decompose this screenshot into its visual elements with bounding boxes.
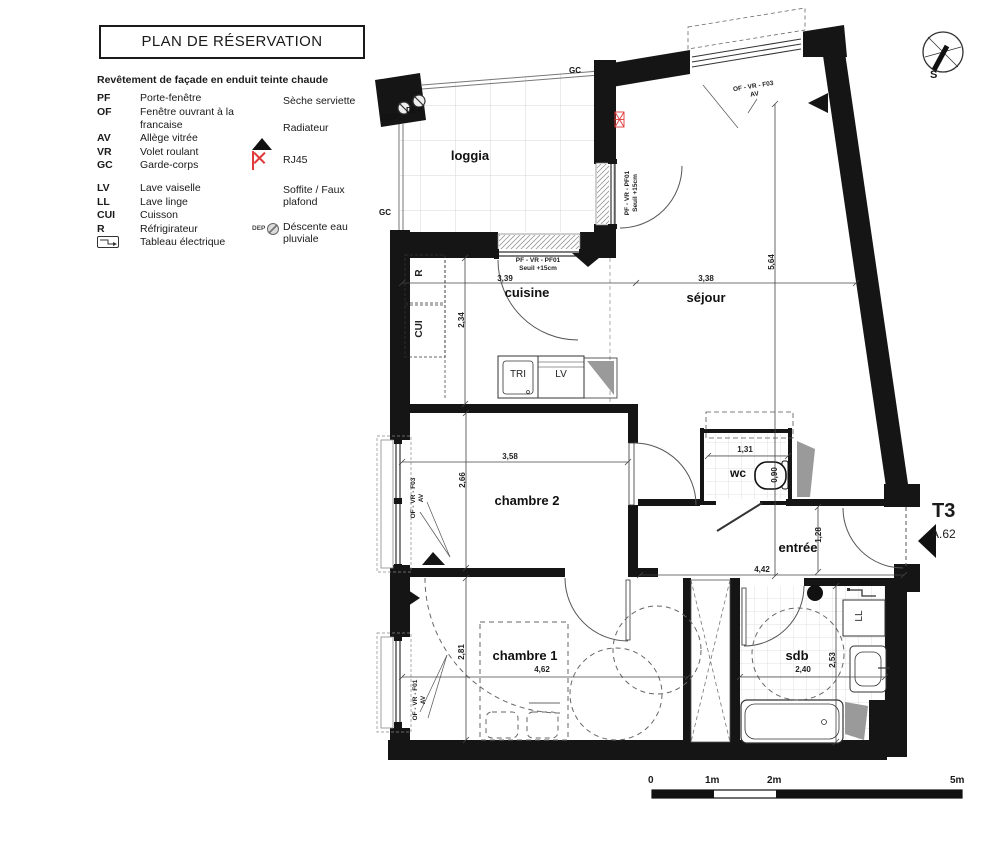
dim-wc-depth: 0,90 [770, 460, 779, 490]
room-label-sdb: sdb [777, 648, 817, 663]
dim-cuisine-height: 2,34 [457, 300, 466, 340]
dim-sejour-height: 5,64 [767, 242, 776, 282]
room-label-chambre1: chambre 1 [465, 648, 585, 663]
sink-tri-label: TRI [504, 369, 532, 380]
legend-symbol-row: Soffite / Faux plafond [252, 183, 402, 209]
scale-bar [652, 790, 962, 798]
dim-entree-width: 4,42 [742, 565, 782, 574]
window-label-loggia: PF - VR - PF01Seuil +15cm [624, 164, 640, 222]
dishwasher-label: LV [544, 369, 578, 380]
legend-symbol-row: Radiateur [252, 121, 402, 139]
compass-south-label: S [930, 69, 937, 81]
dep-label-1: DEP [381, 113, 397, 122]
unit-type-label: T3 [932, 500, 955, 523]
washer-label: LL [854, 598, 865, 634]
room-label-cuisine: cuisine [467, 285, 587, 300]
cooktop-label: CUI [414, 306, 425, 352]
title-box: PLAN DE RÉSERVATION [99, 25, 365, 59]
gc-label-bottom: GC [379, 208, 391, 217]
closet [691, 580, 730, 742]
scale-label-5m: 5m [950, 775, 964, 786]
dim-sdb-width: 2,40 [783, 665, 823, 674]
legend-symbols: Sèche serviette Radiateur RJ45 Soffite /… [252, 94, 402, 246]
dep-label-2: DEP [406, 106, 422, 115]
rj45-icon [252, 152, 283, 170]
window-label-cuisine: PF - VR - PF01Seuil +15cm [496, 257, 580, 273]
scale-label-2m: 2m [767, 775, 781, 786]
gc-label-top: GC [569, 66, 581, 75]
dim-entree-height: 1,28 [814, 516, 823, 554]
compass-icon [923, 32, 963, 72]
dim-sejour-width: 3,38 [686, 274, 726, 283]
window-label-chambre1: OF - VR - F01AV [412, 670, 428, 730]
unit-number-label: A.62 [931, 527, 956, 541]
dim-chambre2-width: 3,58 [490, 452, 530, 461]
electrical-panel-icon [97, 236, 140, 252]
facade-note: Revêtement de façade en enduit teinte ch… [97, 74, 328, 86]
rainwater-downpipe-icon: DEP [252, 220, 283, 235]
radiator-icon [252, 121, 283, 139]
room-label-chambre2: chambre 2 [467, 493, 587, 508]
room-label-sejour: séjour [646, 290, 766, 305]
room-label-wc: wc [718, 466, 758, 480]
legend-symbol-row: RJ45 [252, 152, 402, 170]
dim-chambre1-height: 2,81 [457, 632, 466, 672]
room-label-loggia: loggia [410, 148, 530, 163]
rj45-mark [615, 112, 624, 127]
dim-sdb-height: 2,53 [828, 640, 837, 680]
scale-label-0: 0 [648, 775, 654, 786]
dim-chambre1-width: 4,62 [522, 665, 562, 674]
dim-wc-width: 1,31 [725, 445, 765, 454]
dim-cuisine-width: 3,39 [485, 274, 525, 283]
legend-symbol-row: Sèche serviette [252, 94, 402, 108]
page-title: PLAN DE RÉSERVATION [142, 33, 323, 50]
room-label-entree: entrée [758, 540, 838, 555]
scale-label-1m: 1m [705, 775, 719, 786]
fridge-label: R [414, 258, 425, 288]
window-label-chambre2: OF - VR - F03AV [410, 469, 426, 527]
dim-chambre2-height: 2,66 [458, 460, 467, 500]
floor-plan-page: PLAN DE RÉSERVATION Revêtement de façade… [0, 0, 1000, 857]
legend-symbol-row: DEP Déscente eau pluviale [252, 220, 402, 246]
